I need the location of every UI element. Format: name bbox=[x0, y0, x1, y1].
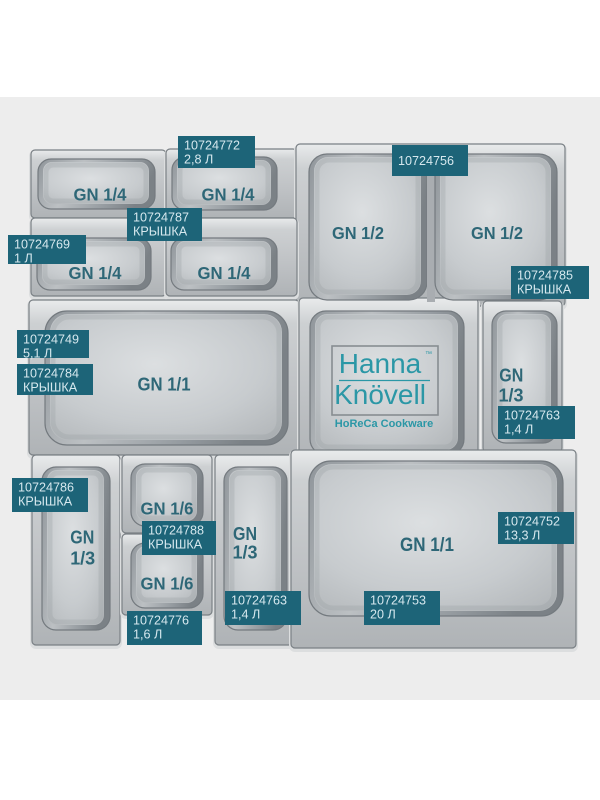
svg-text:Hanna: Hanna bbox=[339, 348, 422, 379]
svg-text:1/3: 1/3 bbox=[70, 549, 95, 569]
svg-text:13,3 Л: 13,3 Л bbox=[504, 529, 540, 543]
svg-text:10724756: 10724756 bbox=[398, 154, 454, 168]
svg-text:20 Л: 20 Л bbox=[370, 608, 396, 622]
svg-text:КРЫШКА: КРЫШКА bbox=[517, 283, 572, 297]
svg-text:GN 1/2: GN 1/2 bbox=[332, 223, 384, 243]
svg-text:КРЫШКА: КРЫШКА bbox=[133, 225, 188, 239]
svg-text:™: ™ bbox=[425, 351, 432, 358]
svg-text:КРЫШКА: КРЫШКА bbox=[148, 538, 203, 552]
svg-text:10724776: 10724776 bbox=[133, 614, 189, 628]
svg-text:КРЫШКА: КРЫШКА bbox=[18, 495, 73, 509]
svg-text:КРЫШКА: КРЫШКА bbox=[23, 381, 78, 395]
svg-text:10724786: 10724786 bbox=[18, 481, 74, 495]
svg-text:GN 1/6: GN 1/6 bbox=[141, 574, 194, 594]
svg-text:1/3: 1/3 bbox=[233, 543, 258, 563]
svg-text:10724787: 10724787 bbox=[133, 211, 189, 225]
svg-text:GN 1/2: GN 1/2 bbox=[471, 223, 523, 243]
svg-text:10724785: 10724785 bbox=[517, 269, 573, 283]
svg-text:1,4 Л: 1,4 Л bbox=[231, 608, 260, 622]
svg-text:10724763: 10724763 bbox=[504, 409, 560, 423]
svg-text:10724769: 10724769 bbox=[14, 238, 70, 252]
svg-text:GN 1/4: GN 1/4 bbox=[69, 263, 122, 283]
svg-text:1/3: 1/3 bbox=[499, 385, 524, 405]
svg-text:5,1 Л: 5,1 Л bbox=[23, 347, 52, 361]
svg-text:2,8 Л: 2,8 Л bbox=[184, 153, 213, 167]
svg-text:10724772: 10724772 bbox=[184, 139, 240, 153]
svg-text:GN: GN bbox=[70, 528, 94, 548]
svg-text:10724788: 10724788 bbox=[148, 524, 204, 538]
svg-text:Knövell: Knövell bbox=[334, 379, 426, 410]
svg-text:GN 1/4: GN 1/4 bbox=[202, 185, 255, 205]
svg-text:10724763: 10724763 bbox=[231, 594, 287, 608]
svg-text:HoReCa Cookware: HoReCa Cookware bbox=[335, 418, 433, 430]
svg-text:GN 1/4: GN 1/4 bbox=[74, 185, 127, 205]
svg-text:10724752: 10724752 bbox=[504, 515, 560, 529]
svg-text:GN 1/4: GN 1/4 bbox=[198, 263, 251, 283]
svg-text:10724784: 10724784 bbox=[23, 367, 79, 381]
svg-text:1,6 Л: 1,6 Л bbox=[133, 628, 162, 642]
svg-text:1 Л: 1 Л bbox=[14, 252, 33, 266]
svg-text:1,4 Л: 1,4 Л bbox=[504, 423, 533, 437]
svg-text:GN 1/1: GN 1/1 bbox=[400, 535, 454, 556]
svg-text:GN 1/1: GN 1/1 bbox=[138, 374, 191, 395]
svg-text:10724749: 10724749 bbox=[23, 333, 79, 347]
svg-text:GN: GN bbox=[233, 524, 257, 544]
svg-text:10724753: 10724753 bbox=[370, 594, 426, 608]
svg-text:GN: GN bbox=[499, 366, 523, 386]
svg-text:GN 1/6: GN 1/6 bbox=[141, 499, 194, 519]
